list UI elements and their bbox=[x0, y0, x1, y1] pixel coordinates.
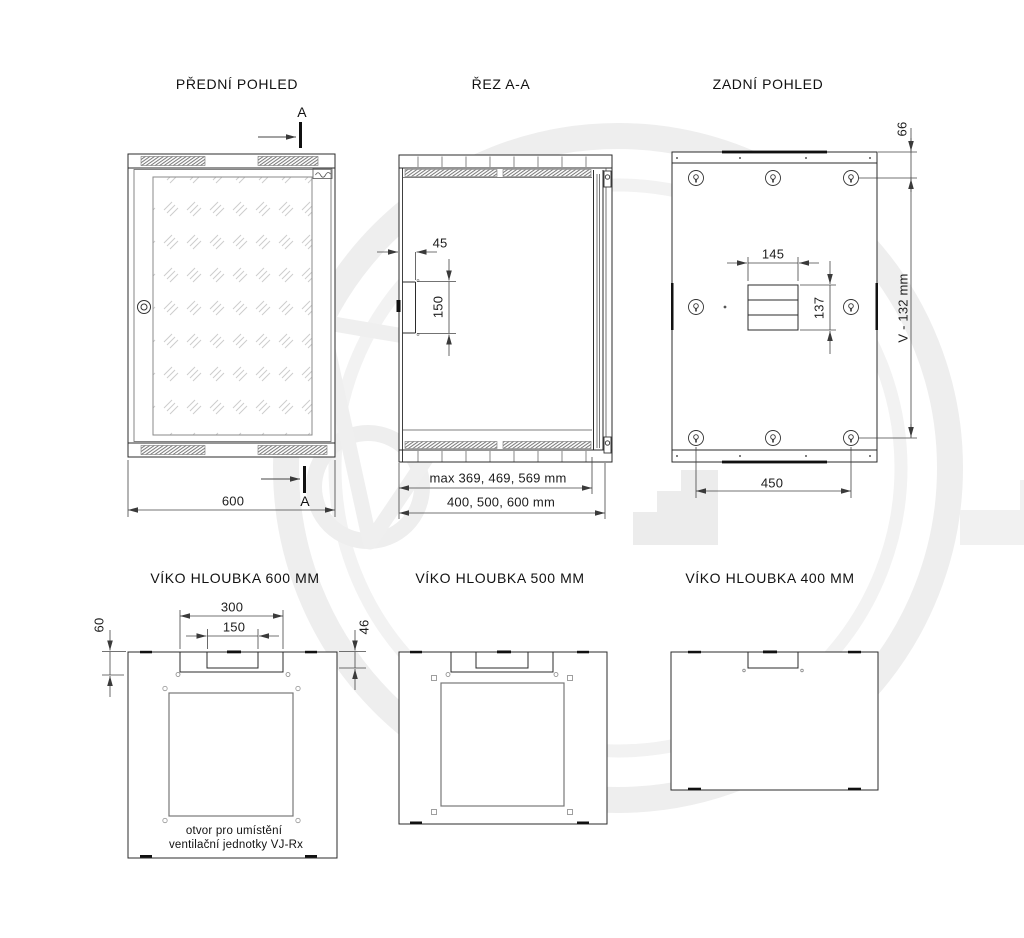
section-marker-label-bottom: A bbox=[300, 493, 310, 509]
dim-label-inner-depth: max 369, 469, 569 mm bbox=[430, 471, 567, 486]
vent-slot bbox=[141, 446, 205, 455]
lid400-view-title: VÍKO HLOUBKA 400 MM bbox=[685, 570, 854, 586]
dim-label-left-offset: 60 bbox=[92, 618, 107, 633]
vent-slot bbox=[141, 157, 205, 166]
dim-label-outer-opening: 300 bbox=[221, 600, 243, 615]
dim-label-cutout-width: 145 bbox=[762, 247, 784, 262]
vent-slot bbox=[258, 157, 318, 166]
wall-bracket-bottom bbox=[722, 461, 827, 464]
dim-label-mount-height: V - 132 mm bbox=[896, 273, 911, 342]
vent-slot bbox=[503, 170, 591, 177]
section-marker-label-top: A bbox=[297, 104, 307, 120]
dim-label-inner-opening: 150 bbox=[223, 620, 245, 635]
drawing-linework bbox=[0, 0, 1024, 938]
glass-panel bbox=[153, 177, 312, 435]
dim-label-edge-offset: 66 bbox=[895, 122, 910, 137]
rear-view-title: ZADNÍ POHLED bbox=[713, 76, 824, 92]
dim-label-cutout-height: 137 bbox=[812, 297, 827, 319]
lid-400-view bbox=[671, 651, 878, 791]
fan-opening-note-line2: ventilační jednotky VJ-Rx bbox=[169, 839, 303, 851]
fan-opening-note-line1: otvor pro umístění bbox=[186, 825, 282, 837]
dim-label-outer-depth: 400, 500, 600 mm bbox=[447, 495, 555, 510]
lid600-view-title: VÍKO HLOUBKA 600 MM bbox=[150, 570, 319, 586]
front-view-title: PŘEDNÍ POHLED bbox=[176, 76, 298, 92]
rear-view bbox=[671, 128, 917, 498]
wall-bracket-top bbox=[722, 151, 827, 154]
front-view bbox=[128, 122, 335, 517]
vent-slot bbox=[258, 446, 327, 455]
lid-500-view bbox=[399, 651, 607, 825]
dim-label-notch-height: 150 bbox=[431, 296, 446, 318]
technical-drawing-page: PŘEDNÍ POHLED ŘEZ A-A ZADNÍ POHLED VÍKO … bbox=[0, 0, 1024, 938]
dim-label-right-offset: 46 bbox=[357, 620, 372, 635]
vent-slot bbox=[405, 170, 497, 177]
vent-slot bbox=[405, 442, 497, 449]
section-view-title: ŘEZ A-A bbox=[472, 76, 531, 92]
dim-label-mount-spacing: 450 bbox=[761, 476, 783, 491]
vent-slot bbox=[503, 442, 591, 449]
section-view bbox=[377, 155, 612, 519]
lid500-view-title: VÍKO HLOUBKA 500 MM bbox=[415, 570, 584, 586]
lid-600-view bbox=[102, 610, 366, 858]
dim-label-front-width: 600 bbox=[222, 494, 244, 509]
dim-label-notch-depth: 45 bbox=[433, 236, 448, 251]
